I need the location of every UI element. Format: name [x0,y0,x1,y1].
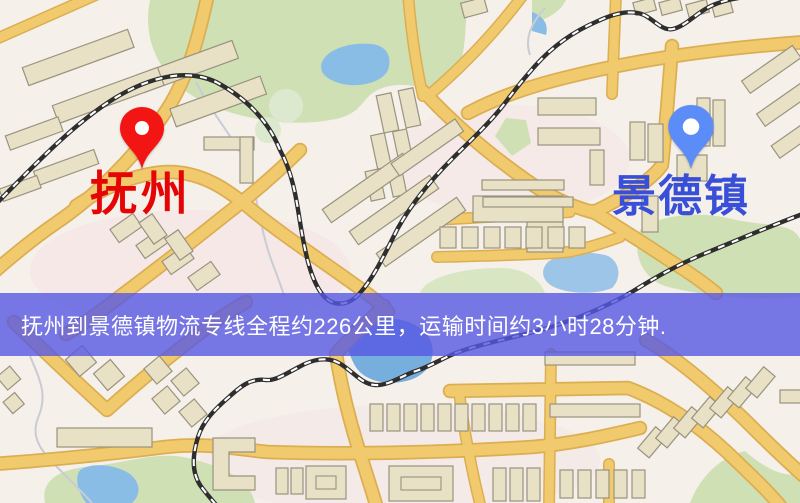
route-info-banner: 抚州到景德镇物流专线全程约226公里，运输时间约3小时28分钟. [0,293,800,356]
basemap [0,0,800,503]
destination-pin-icon[interactable] [666,105,716,169]
origin-pin-icon[interactable] [118,107,166,169]
origin-pin-hole [135,121,149,135]
map-canvas[interactable]: 抚州 景德镇 抚州到景德镇物流专线全程约226公里，运输时间约3小时28分钟. [0,0,800,503]
destination-pin-hole [683,118,700,135]
destination-label: 景德镇 [612,175,750,219]
origin-pin-shape [120,107,164,169]
destination-pin-shape [668,105,713,169]
route-info-text: 抚州到景德镇物流专线全程约226公里，运输时间约3小时28分钟. [21,309,667,341]
origin-label: 抚州 [90,172,192,219]
